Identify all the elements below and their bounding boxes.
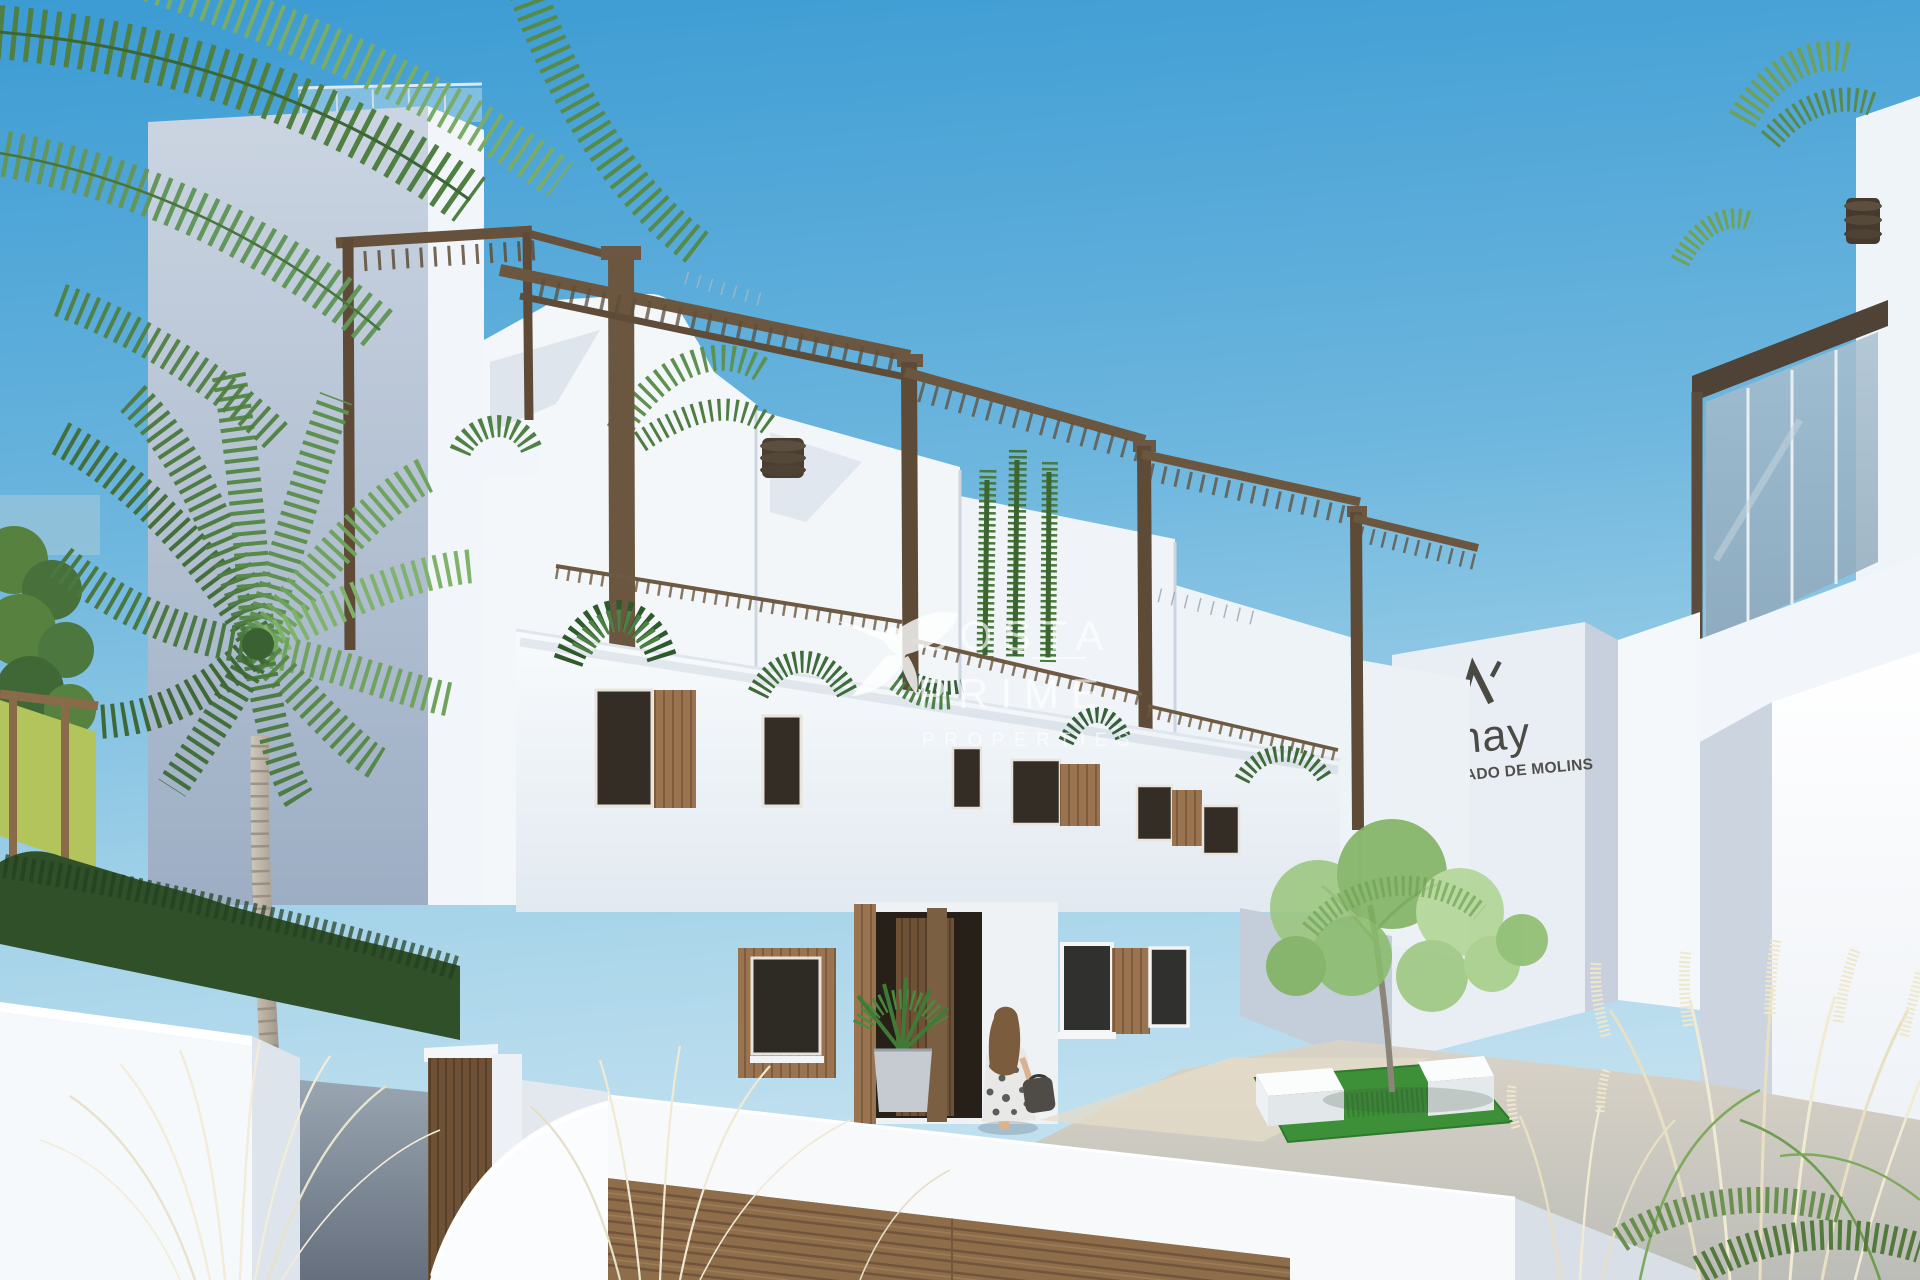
window [953, 748, 981, 808]
wood-pier [1172, 790, 1202, 846]
planter-wall-front [0, 1012, 252, 1280]
handbag [1022, 1076, 1056, 1114]
window [1203, 806, 1239, 854]
right-windows [1058, 944, 1188, 1039]
planter-wall-return [252, 1036, 300, 1280]
wood-pier [654, 690, 696, 808]
window [763, 716, 801, 806]
watermark-line3: PROPERTIES [922, 730, 1139, 751]
watermark-line2: PRIME [918, 670, 1111, 717]
watermark-line1: COSTA [918, 612, 1115, 659]
scene-svg: amay MARQUESADO DE MOLINS [0, 0, 1920, 1280]
left-window-module [738, 948, 836, 1078]
amay-side-face [1585, 622, 1618, 1012]
window [596, 690, 652, 806]
chimney-right-icon [1844, 198, 1882, 244]
chimney-icon [760, 438, 806, 478]
render-canvas: amay MARQUESADO DE MOLINS [0, 0, 1920, 1280]
window [1137, 786, 1172, 840]
wood-pier [1060, 764, 1100, 826]
amay-rear-tower [1618, 612, 1700, 1010]
tower-side-face [428, 106, 484, 905]
window [1012, 760, 1060, 824]
